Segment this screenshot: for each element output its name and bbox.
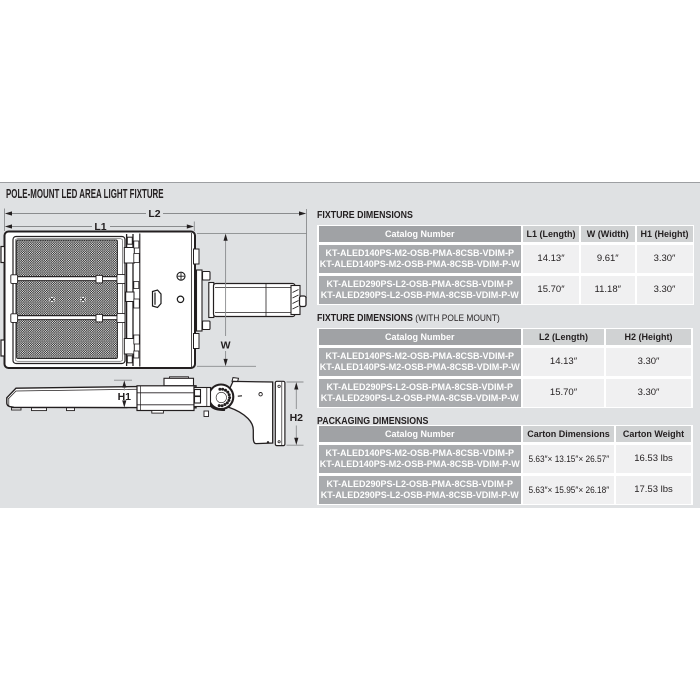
- svg-text:H2: H2: [290, 412, 304, 424]
- svg-text:W: W: [221, 340, 231, 352]
- svg-text:H1: H1: [118, 391, 132, 403]
- svg-text:L2: L2: [148, 208, 160, 220]
